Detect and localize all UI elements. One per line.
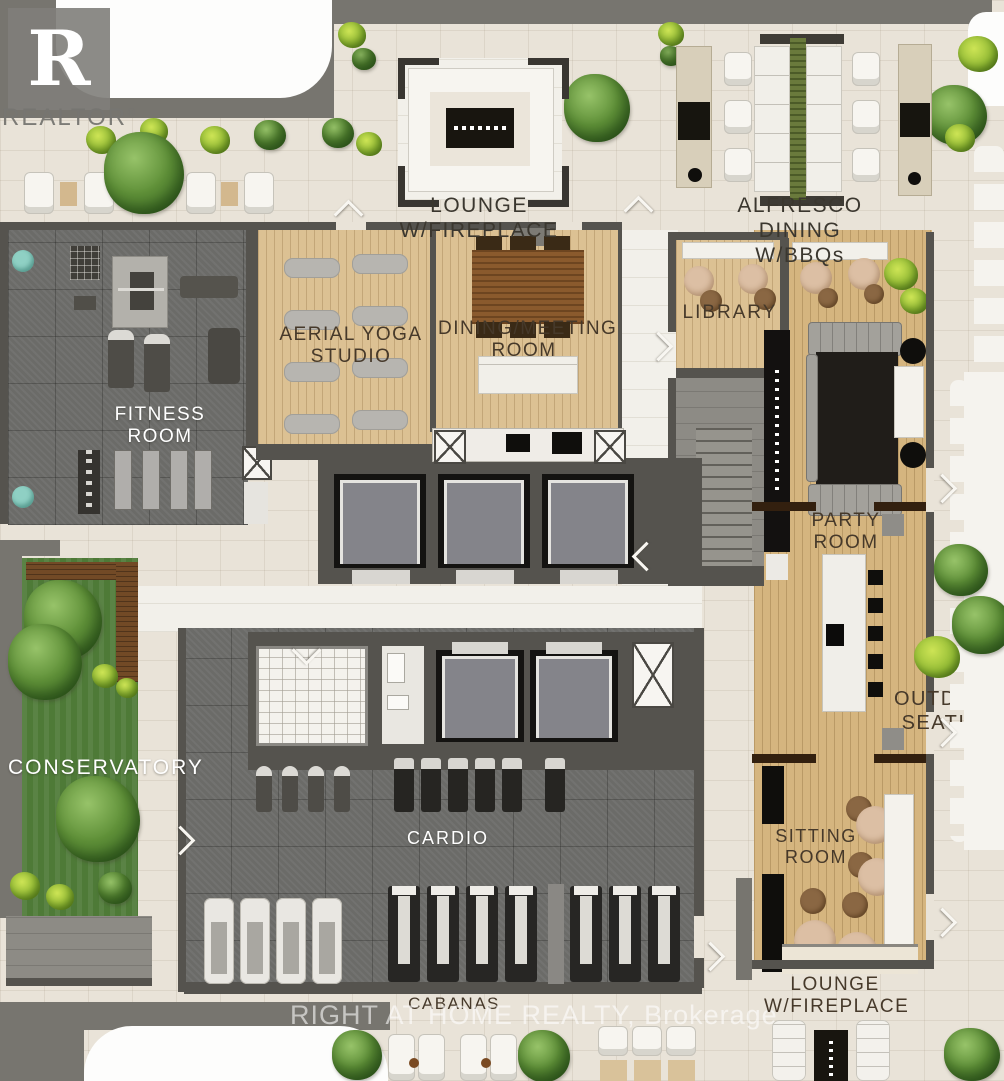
chair: [852, 52, 880, 86]
chair: [666, 1026, 696, 1056]
side-table: [900, 442, 926, 468]
chair: [852, 148, 880, 182]
label-lounge-fireplace-top: LOUNGE W/FIREPLACE: [384, 194, 574, 244]
dining-table: [806, 46, 842, 192]
appliance: [506, 434, 530, 452]
wall-header: [874, 754, 930, 763]
elevator: [530, 650, 618, 742]
sofa: [772, 1020, 806, 1081]
yoga-mat: [284, 414, 340, 434]
spin-bike: [256, 766, 272, 812]
wall-bottom-left: [0, 1002, 84, 1081]
treadmill: [312, 898, 342, 984]
treadmill: [466, 886, 498, 982]
island-sink: [826, 624, 844, 646]
fireplace-flame: [829, 1038, 833, 1076]
spin-bike: [282, 766, 298, 812]
weight-bench: [142, 450, 160, 510]
media-wall-decor: [775, 370, 779, 490]
fireplace-flame: [454, 126, 506, 130]
terrace-pad: [6, 916, 152, 982]
hedge-wall: [974, 146, 1004, 372]
wall: [0, 222, 8, 524]
elevator: [542, 474, 634, 568]
treadmill: [505, 886, 537, 982]
fixture: [388, 696, 408, 709]
elevator-door: [456, 570, 514, 584]
meeting-table: [472, 250, 584, 324]
spin-bike: [308, 766, 324, 812]
elevator-door: [352, 570, 410, 584]
cabana-lounger: [490, 1034, 517, 1081]
tree: [254, 120, 286, 150]
chair: [598, 1026, 628, 1056]
cabinet: [762, 766, 784, 824]
wall: [668, 238, 676, 332]
chair: [724, 52, 752, 86]
chair: [800, 888, 826, 914]
wall: [926, 232, 934, 962]
amenity-room: [256, 646, 368, 746]
dining-table: [754, 46, 790, 192]
washroom: [382, 646, 424, 744]
sofa: [856, 1020, 890, 1081]
label-yoga-studio: AERIAL YOGA STUDIO: [278, 324, 424, 369]
elevator: [436, 650, 524, 742]
chair: [632, 1026, 662, 1056]
tree: [518, 1030, 570, 1081]
tree: [8, 624, 82, 700]
bar-stool: [868, 598, 883, 613]
bush: [356, 132, 382, 156]
wall-header: [874, 502, 930, 511]
bush: [200, 126, 230, 154]
label-lounge-fireplace-bottom: LOUNGE W/FIREPLACE: [764, 974, 906, 1019]
bar-stool: [868, 570, 883, 585]
tree: [332, 1030, 382, 1080]
stool: [882, 514, 904, 536]
lounge-chair: [24, 172, 54, 214]
bar-stool: [868, 682, 883, 697]
cabana-lounger: [418, 1034, 445, 1081]
door-swing-icon: [624, 196, 654, 226]
tree: [98, 872, 132, 904]
bbq-grill-icon: [678, 102, 710, 140]
elliptical: [502, 758, 522, 812]
realtor-logo-letter: R: [27, 21, 90, 97]
bbq-sink: [688, 168, 702, 182]
chair: [724, 100, 752, 134]
bench: [884, 794, 914, 954]
ottoman: [634, 1060, 661, 1081]
planter: [116, 562, 138, 682]
cable-machine: [70, 246, 100, 280]
bush: [10, 872, 40, 900]
treadmill: [240, 898, 270, 984]
elevator-door: [546, 642, 602, 654]
fireplace: [814, 1030, 848, 1081]
credenza: [478, 356, 578, 394]
cabinet: [762, 874, 784, 972]
elliptical: [448, 758, 468, 812]
wall: [0, 552, 22, 918]
weight-bench: [130, 272, 154, 310]
stool: [864, 284, 884, 304]
wall: [6, 978, 152, 986]
ottoman: [600, 1060, 627, 1081]
registered-mark: ®: [127, 107, 137, 119]
weight-bench: [170, 450, 188, 510]
elliptical: [475, 758, 495, 812]
label-fitness-room: FITNESS ROOM: [110, 404, 210, 449]
partition: [548, 884, 564, 984]
media-wall: [764, 330, 790, 552]
gym-machine: [180, 276, 238, 298]
stool: [818, 288, 838, 308]
bush: [900, 288, 928, 314]
service-room: [244, 482, 268, 524]
fireplace: [446, 108, 514, 148]
bar-stool: [868, 654, 883, 669]
ottoman: [668, 1060, 695, 1081]
gym-machine: [208, 328, 240, 384]
lounge-chair: [186, 172, 216, 214]
elevator: [438, 474, 530, 568]
barbell-rack: [78, 450, 100, 514]
side-table: [60, 182, 77, 206]
elevator-door: [452, 642, 508, 654]
barbell: [118, 288, 164, 291]
cabana-table: [481, 1058, 491, 1068]
label-conservatory: CONSERVATORY: [8, 756, 186, 781]
tree: [56, 776, 140, 862]
treadmill: [276, 898, 306, 984]
realtor-logo-text: REALTOR®: [2, 104, 152, 132]
yoga-mat: [352, 410, 408, 430]
treadmill: [609, 886, 641, 982]
floor-plan: R REALTOR®: [0, 0, 1004, 1081]
bbq-sink: [908, 172, 921, 185]
treadmill: [648, 886, 680, 982]
bush: [338, 22, 366, 48]
tree: [564, 74, 630, 142]
bush: [46, 884, 74, 910]
bush: [92, 664, 118, 688]
treadmill: [204, 898, 234, 984]
yoga-mat: [352, 254, 408, 274]
elevator-icon: [434, 430, 466, 464]
weight-bench: [114, 450, 132, 510]
bench: [782, 944, 918, 974]
chair: [724, 148, 752, 182]
label-cardio: CARDIO: [390, 828, 506, 849]
cabana-table: [409, 1058, 419, 1068]
tree: [322, 118, 354, 148]
label-party-room: PARTY ROOM: [796, 510, 896, 555]
spin-bike: [334, 766, 350, 812]
stairs-icon: [696, 428, 752, 568]
yoga-mat: [284, 258, 340, 278]
side-table: [221, 182, 238, 206]
sofa: [808, 322, 902, 356]
exercise-bike: [108, 330, 134, 388]
wall: [178, 628, 186, 992]
elevator-icon: [594, 430, 626, 464]
appliance: [552, 432, 582, 454]
wall-top-strip: [334, 0, 992, 24]
bar-stool: [868, 626, 883, 641]
realtor-logo-icon: R: [8, 8, 110, 110]
elliptical: [394, 758, 414, 812]
side-table: [900, 338, 926, 364]
cabinet: [766, 554, 788, 580]
brokerage-watermark: RIGHT AT HOME REALTY, Brokerage: [290, 1000, 778, 1031]
wall-header: [752, 502, 816, 511]
treadmill: [427, 886, 459, 982]
tree: [952, 596, 1004, 654]
tree: [944, 1028, 1000, 1081]
elliptical: [545, 758, 565, 812]
treadmill: [388, 886, 420, 982]
treadmill: [570, 886, 602, 982]
bush: [658, 22, 684, 46]
label-alfresco-dining: ALFRESCO DINING W/BBQs: [698, 194, 902, 268]
bush: [958, 36, 998, 72]
tree: [352, 48, 376, 70]
wall-header: [752, 754, 816, 763]
elliptical: [421, 758, 441, 812]
fixture: [388, 654, 404, 682]
wall: [736, 878, 752, 980]
corridor: [84, 586, 702, 632]
elevator-icon: [632, 642, 674, 708]
bush: [945, 124, 975, 152]
chair: [852, 100, 880, 134]
wall: [430, 230, 436, 432]
bench: [894, 366, 924, 438]
bush: [914, 636, 960, 678]
sofa: [806, 354, 818, 482]
area-rug: [816, 352, 898, 484]
exercise-bike: [144, 334, 170, 392]
lounge-chair: [244, 172, 274, 214]
table-runner: [790, 38, 806, 200]
wall: [752, 960, 934, 969]
tree: [934, 544, 988, 596]
label-library: LIBRARY: [680, 302, 780, 324]
exercise-ball: [12, 486, 34, 508]
chair: [842, 892, 868, 918]
dumbbell-rack: [74, 296, 96, 310]
bush: [116, 678, 138, 698]
tree: [104, 132, 184, 214]
elevator-door: [560, 570, 618, 584]
bbq-grill-icon: [900, 103, 930, 137]
yoga-mat: [352, 306, 408, 326]
elevator: [334, 474, 426, 568]
exercise-ball: [12, 250, 34, 272]
weight-bench: [194, 450, 212, 510]
